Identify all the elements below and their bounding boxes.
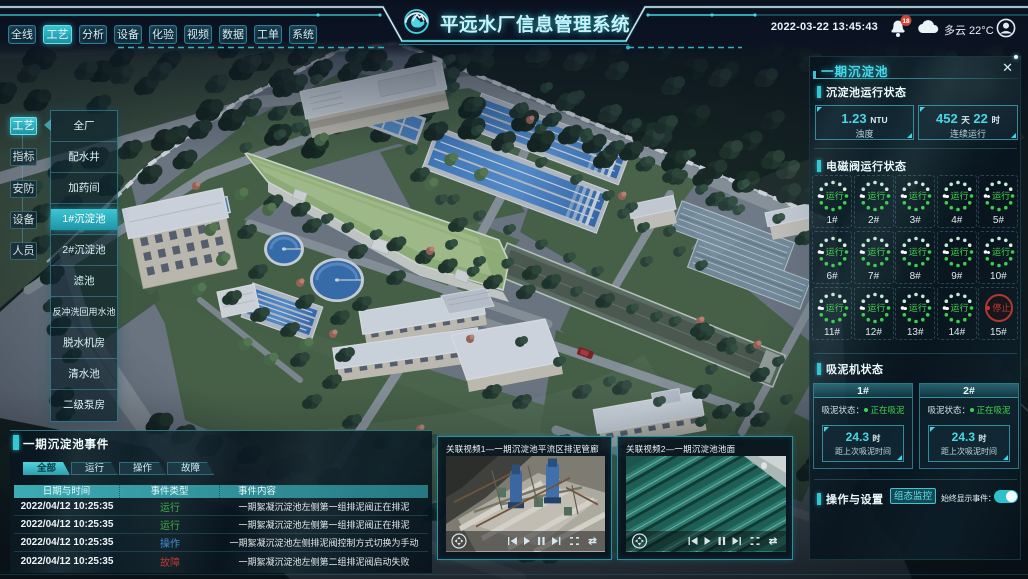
svg-text:18: 18 [902,18,910,25]
